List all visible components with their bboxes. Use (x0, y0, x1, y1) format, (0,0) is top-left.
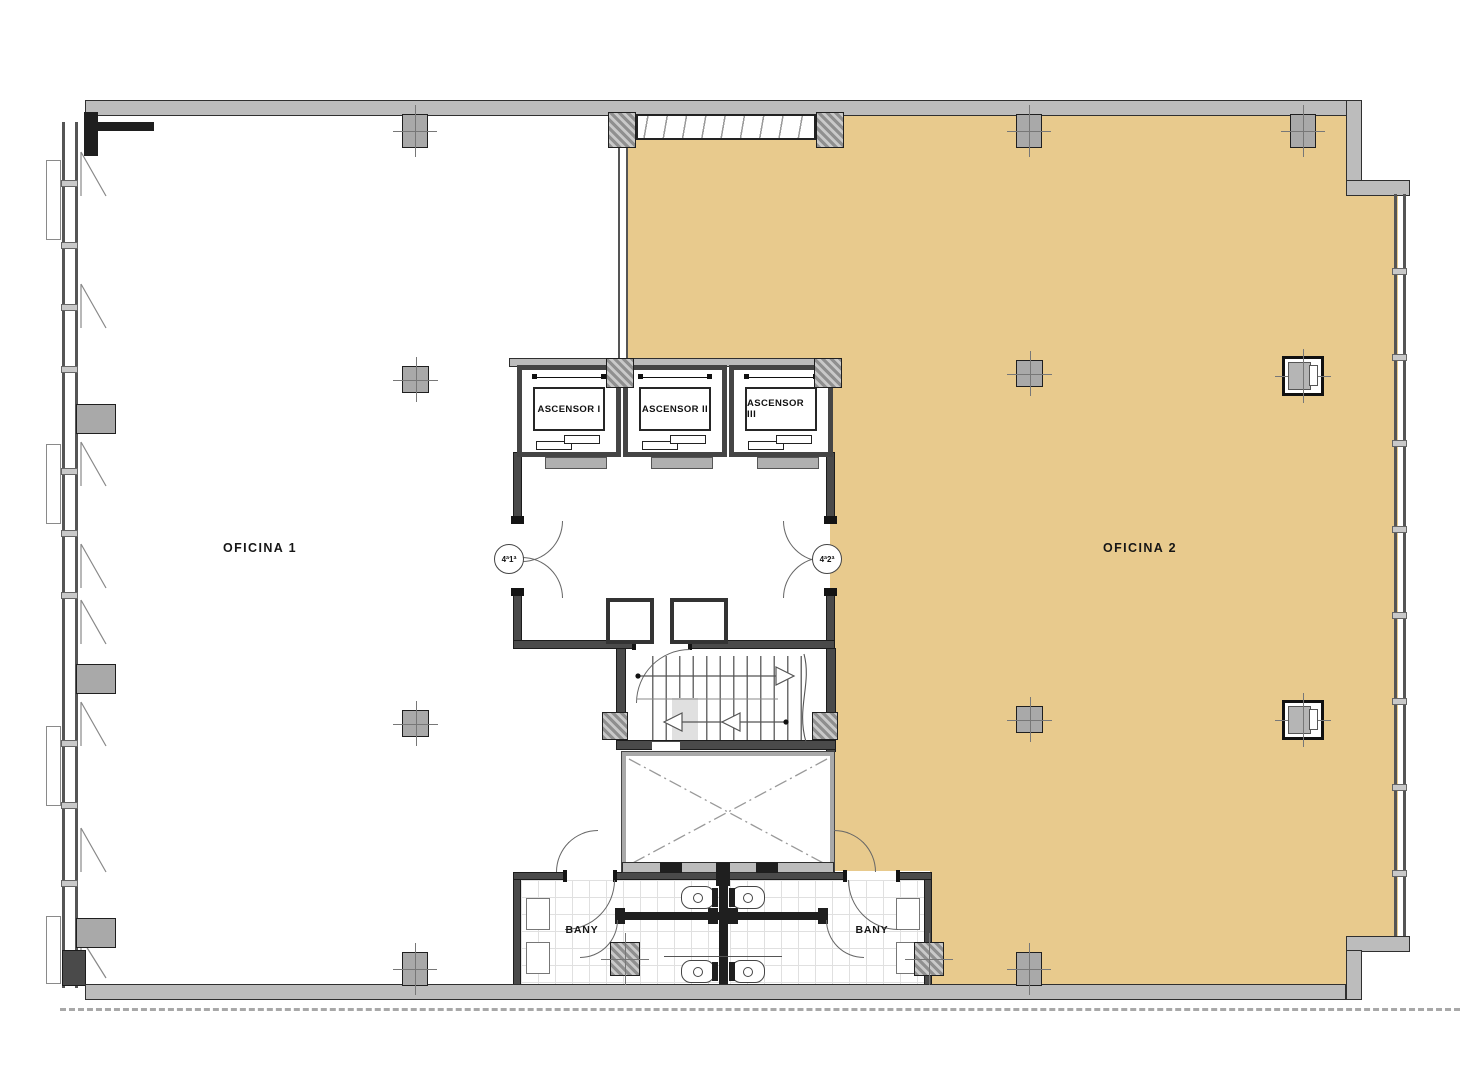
window-tick (61, 366, 78, 373)
window-tick (1392, 526, 1407, 533)
shaft-bottom-stub (756, 862, 778, 873)
window-tick (61, 592, 78, 599)
elevator-sill (545, 457, 607, 469)
bany-top-wall (615, 872, 719, 880)
cistern (729, 888, 735, 907)
cistern (712, 888, 718, 907)
elevator-2: ASCENSOR II (623, 365, 727, 457)
column (402, 710, 429, 737)
elevator-sill (651, 457, 713, 469)
window-tick (61, 880, 78, 887)
floor-plan: ASCENSOR I ASCENSOR II ASCENSOR III 4ª1ª… (0, 0, 1468, 1085)
door-tag-left: 4ª1ª (494, 544, 524, 574)
void-cross-icon (626, 756, 830, 868)
closet (670, 598, 728, 644)
sink-fixture (526, 942, 550, 974)
door-jamb (824, 588, 837, 596)
window-tick (61, 242, 78, 249)
door-swing (556, 830, 598, 872)
window-tick (1392, 784, 1407, 791)
door-tag-right: 4ª2ª (812, 544, 842, 574)
column-with-unit (1282, 356, 1324, 396)
elevator-door (564, 435, 600, 444)
left-wall-column (76, 404, 116, 434)
window-tick (61, 468, 78, 475)
column-hatched (608, 112, 636, 148)
elevator-door (670, 435, 706, 444)
closet (606, 598, 654, 644)
sink-fixture (526, 898, 550, 930)
elevator-travel-arrow-icon (534, 377, 604, 378)
bany-top-wall (898, 872, 932, 880)
right-facade-line-outer (1403, 194, 1406, 940)
elevator-car-label: ASCENSOR I (533, 387, 605, 431)
column (1016, 952, 1042, 986)
column-hatched (606, 358, 634, 388)
elevator-sill (757, 457, 819, 469)
window-tick (1392, 354, 1407, 361)
window-swing-icon (78, 440, 110, 488)
bany-left-outer-wall (513, 872, 521, 998)
facade-fin (46, 444, 61, 524)
column-hatched (610, 942, 640, 976)
stall-wall-cap (728, 908, 738, 924)
bottom-left-corner-wall (62, 950, 86, 986)
bany-right-outer-wall (924, 872, 932, 998)
oficina-2-label: OFICINA 2 (1065, 541, 1215, 555)
elevator-door (776, 435, 812, 444)
toilet (681, 886, 715, 909)
window-tick (61, 180, 78, 187)
door-swing (522, 557, 563, 598)
column (1290, 114, 1316, 148)
toilet (731, 886, 765, 909)
window-tick (1392, 698, 1407, 705)
column-hatched (814, 358, 842, 388)
bottom-right-step-vertical (1346, 950, 1362, 1000)
cistern (729, 962, 735, 981)
window-swing-icon (78, 700, 110, 748)
door-swing (522, 521, 563, 562)
toilet (731, 960, 765, 983)
counter-line (664, 956, 782, 957)
column (1016, 114, 1042, 148)
column-hatched (812, 712, 838, 740)
stall-wall (615, 912, 719, 920)
bany-top-wall (728, 872, 845, 880)
bany-top-wall (513, 872, 565, 880)
elevator-car-label: ASCENSOR III (745, 387, 817, 431)
stall-wall (728, 912, 828, 920)
facade-fin (46, 160, 61, 240)
window-swing-icon (78, 826, 110, 874)
column-hatched (602, 712, 628, 740)
window-tick (1392, 268, 1407, 275)
window-tick (61, 530, 78, 537)
toilet (681, 960, 715, 983)
bany-left-label: BANY (552, 924, 612, 936)
louver-vent (636, 114, 816, 140)
cistern (712, 962, 718, 981)
top-left-corner-wall (84, 112, 98, 156)
unit-fill (1288, 362, 1311, 390)
column (402, 952, 428, 986)
office-partition-wall (618, 146, 628, 366)
column (402, 366, 429, 393)
window-tick (1392, 870, 1407, 877)
door-jamb (824, 516, 837, 524)
unit-fill (1288, 706, 1311, 734)
unit-slot (1309, 365, 1318, 386)
window-swing-icon (78, 282, 110, 330)
stairs-annotation (628, 650, 834, 746)
top-right-step-horizontal (1346, 180, 1410, 196)
left-wall-column (76, 918, 116, 948)
left-facade-line-outer (62, 122, 65, 988)
window-tick (1392, 612, 1407, 619)
top-right-step-vertical (1346, 100, 1362, 184)
window-swing-icon (78, 542, 110, 590)
bany-divider-wall (719, 872, 728, 998)
stall-wall-cap (708, 908, 718, 924)
left-wall-column (76, 664, 116, 694)
elevator-travel-arrow-icon (746, 377, 816, 378)
column (1016, 706, 1043, 733)
elevator-travel-arrow-icon (640, 377, 710, 378)
window-tick (1392, 440, 1407, 447)
oficina-1-label: OFICINA 1 (185, 541, 335, 555)
lobby-left-wall (513, 452, 522, 522)
shaft-bottom-tee (716, 862, 730, 886)
window-tick (61, 802, 78, 809)
column-with-unit (1282, 700, 1324, 740)
shaft-bottom-stub (660, 862, 682, 873)
elevator-car-label: ASCENSOR II (639, 387, 711, 431)
column-hatched (816, 112, 844, 148)
street-line (60, 1008, 1460, 1011)
right-facade-line-inner (1394, 194, 1397, 940)
lobby-right-wall (826, 452, 835, 522)
column (402, 114, 428, 148)
top-left-corner-wall (96, 122, 154, 131)
facade-fin (46, 916, 61, 984)
bottom-wall (85, 984, 1346, 1000)
void-shaft (622, 752, 834, 872)
window-tick (61, 740, 78, 747)
window-swing-icon (78, 150, 110, 198)
column (1016, 360, 1043, 387)
column-hatched (914, 942, 944, 976)
window-swing-icon (78, 598, 110, 646)
bany-right-label: BANY (842, 924, 902, 936)
unit-slot (1309, 709, 1318, 730)
window-tick (61, 304, 78, 311)
facade-fin (46, 726, 61, 806)
